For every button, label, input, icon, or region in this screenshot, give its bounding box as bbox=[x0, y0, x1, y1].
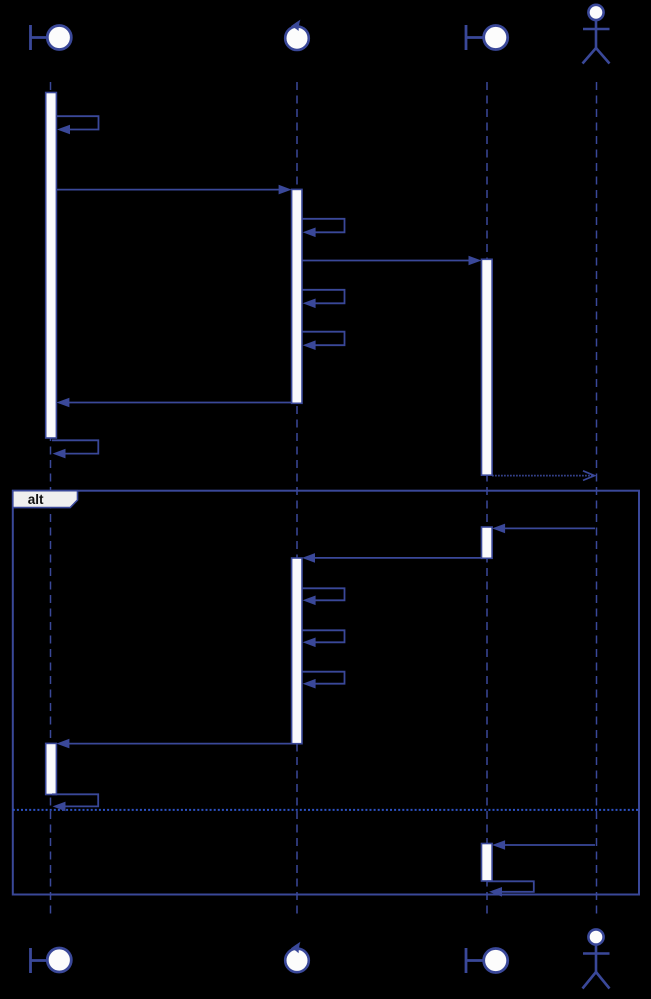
svg-text:alt: alt bbox=[28, 492, 44, 507]
